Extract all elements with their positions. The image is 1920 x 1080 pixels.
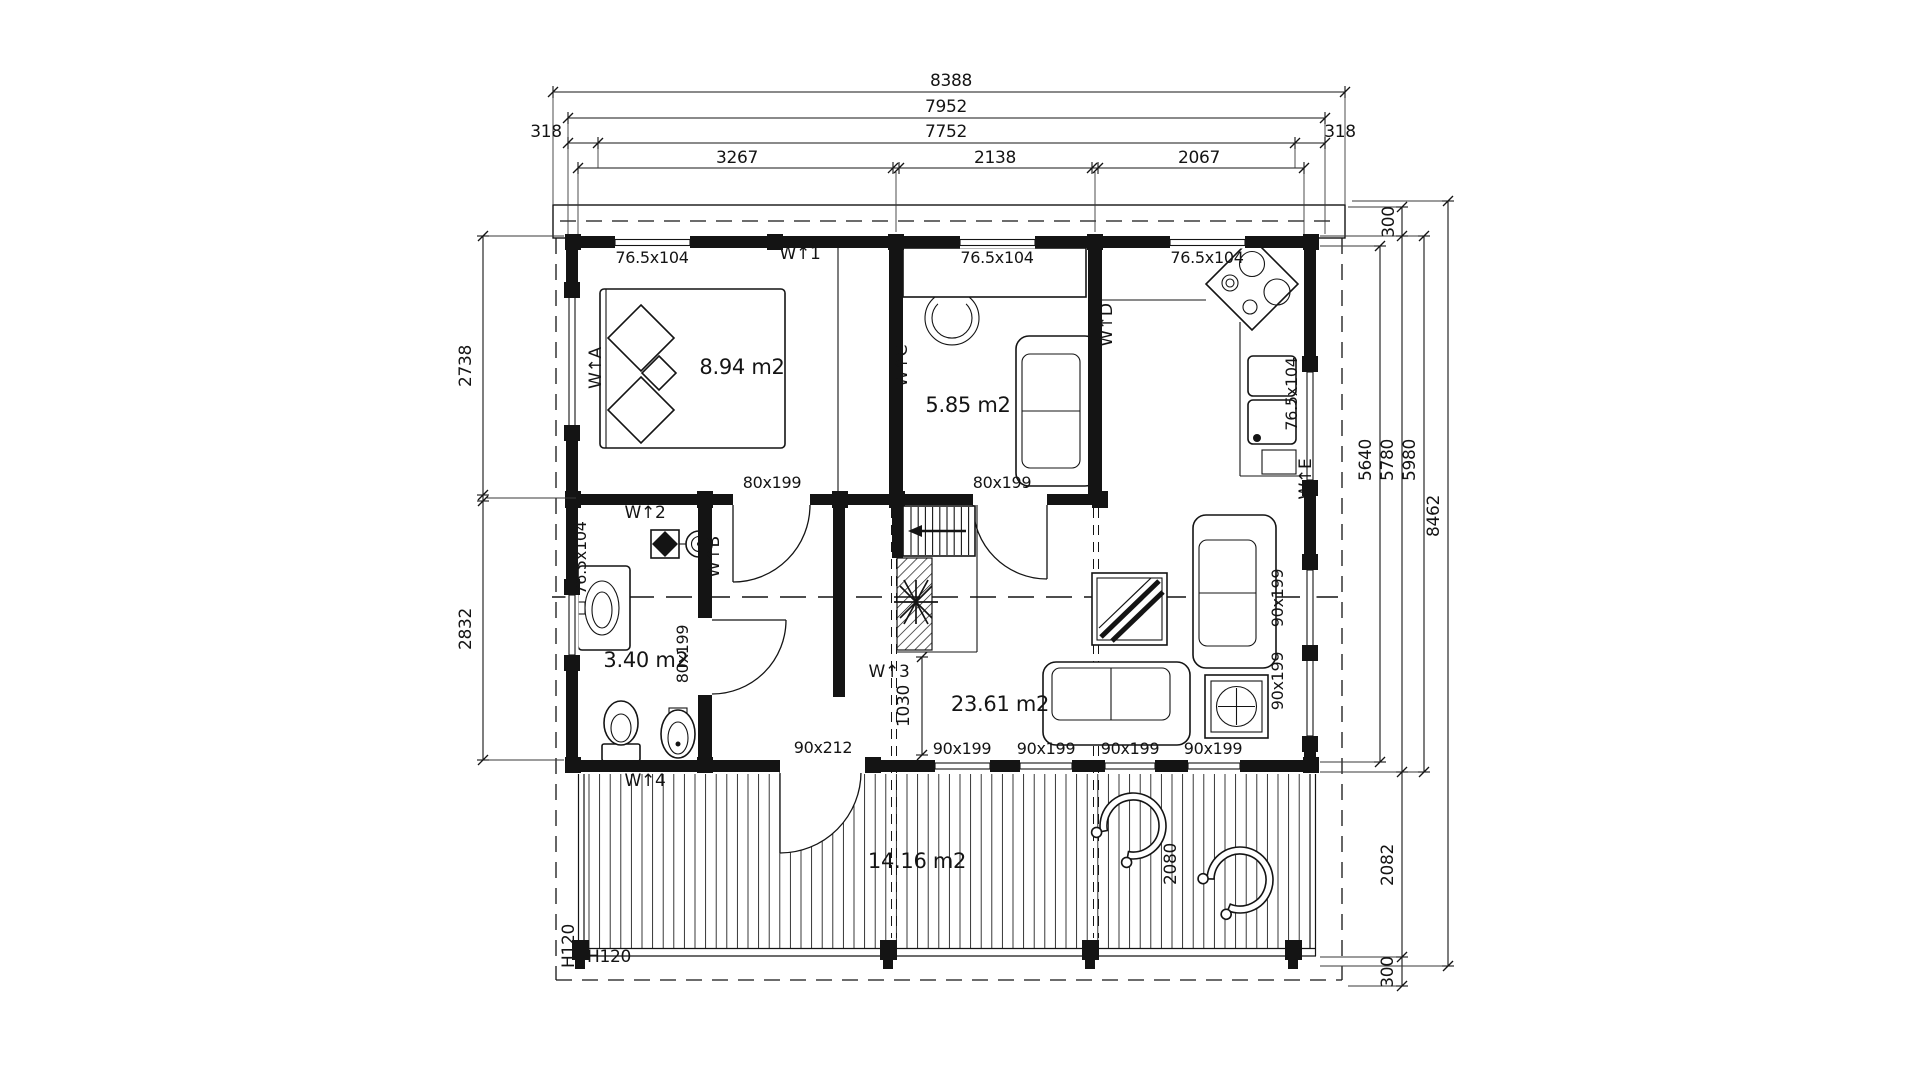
window-marker-wd: W↑D <box>1097 303 1117 346</box>
dim-lower-depth: 2832 <box>456 608 476 650</box>
living-stove <box>1205 675 1268 738</box>
window-size-label: 76.5x104 <box>960 248 1033 267</box>
dim-study-width: 2138 <box>974 148 1016 168</box>
terrace-window-label: 90x199 <box>1268 569 1287 628</box>
window-size-label: 76.5x104 <box>571 521 590 594</box>
dim-overhang-left: 318 <box>530 122 562 142</box>
dim-stair-opening: 1030 <box>894 685 914 727</box>
staircase <box>897 505 977 652</box>
door-size-label: 80x199 <box>743 473 802 492</box>
terrace-window-label: 90x199 <box>1268 652 1287 711</box>
door-size-label: 80x199 <box>973 473 1032 492</box>
window-size-label: 76.5x104 <box>1170 248 1243 267</box>
window-size-label: 76.5x104 <box>615 248 688 267</box>
floor-plan-page: 8388 7952 7752 318 318 3267 2138 2067 27… <box>0 0 1920 1080</box>
dim-kitchen-width: 2067 <box>1178 148 1220 168</box>
dim-terrace-bay: 2080 <box>1161 843 1181 885</box>
dim-terrace-depth: 2082 <box>1378 844 1398 886</box>
terrace-window-label: 90x199 <box>1101 739 1160 758</box>
window-marker-wc: W↑C <box>892 345 912 387</box>
bathroom-bidet <box>661 708 695 758</box>
dim-railing-height: H120 <box>559 924 579 968</box>
dim-inner-depth: 5640 <box>1356 439 1376 481</box>
dim-total-depth: 8462 <box>1424 495 1444 537</box>
living-coffee-table <box>1092 573 1167 645</box>
terrace-posts <box>572 940 1302 969</box>
window-marker-w2: W↑2 <box>625 503 666 523</box>
floor-plan-drawing: 8388 7952 7752 318 318 3267 2138 2067 27… <box>0 0 1920 1080</box>
window-marker-wa: W↑A <box>586 346 606 388</box>
study-sofa <box>1016 336 1098 486</box>
window-marker-wb: W↑B <box>704 536 724 578</box>
terrace-door-label: 90x212 <box>794 738 853 757</box>
living-sofa-bottom <box>1043 662 1190 745</box>
dim-inner-width: 7752 <box>925 122 967 142</box>
dim-railing-height-2: H120 <box>587 947 631 967</box>
window-marker-we: W↑E <box>1296 459 1316 500</box>
dim-overall-width: 8388 <box>930 71 972 91</box>
terrace-door <box>780 772 861 853</box>
dim-overhang-right: 318 <box>1324 122 1356 142</box>
bedroom-area-label: 8.94 m2 <box>699 355 784 379</box>
terrace-window-label: 90x199 <box>1017 739 1076 758</box>
dim-eave-bottom: 300 <box>1378 956 1398 988</box>
window-marker-w3: W↑3 <box>869 662 910 682</box>
window-size-label: 76.5x104 <box>1282 357 1301 430</box>
bathroom-toilet <box>602 701 640 761</box>
window-marker-w1: W↑1 <box>780 244 821 264</box>
study-area-label: 5.85 m2 <box>925 393 1010 417</box>
dim-bedroom-width: 3267 <box>716 148 758 168</box>
plant-icon <box>894 580 938 624</box>
terrace-window-label: 90x199 <box>1184 739 1243 758</box>
terrace-window-label: 90x199 <box>933 739 992 758</box>
window-marker-w4: W↑4 <box>625 771 666 791</box>
dim-upper-depth: 2738 <box>456 345 476 387</box>
living-sofa-right <box>1193 515 1276 668</box>
dim-eave-top: 300 <box>1379 206 1399 238</box>
washing-machine-icon <box>651 530 679 558</box>
living-area-label: 23.61 m2 <box>951 692 1049 716</box>
dim-outer-depth: 5980 <box>1400 439 1420 481</box>
terrace-area-label: 14.16 m2 <box>868 849 966 873</box>
bathroom-area-label: 3.40 m2 <box>603 648 688 672</box>
terrace-chair <box>1092 793 1166 867</box>
dim-mid-depth: 5780 <box>1378 439 1398 481</box>
dim-wall-width: 7952 <box>925 97 967 117</box>
